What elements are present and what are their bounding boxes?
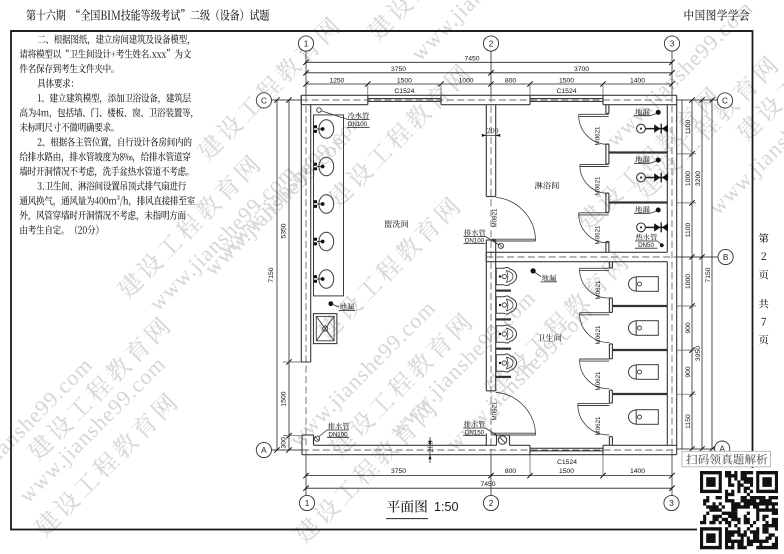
svg-text:M0621: M0621 [595, 126, 602, 145]
svg-text:3: 3 [670, 39, 675, 48]
svg-text:3950: 3950 [695, 346, 702, 361]
svg-text:1100: 1100 [685, 222, 692, 237]
svg-text:M0621: M0621 [595, 416, 602, 435]
svg-text:7150: 7150 [268, 267, 275, 282]
svg-text:800: 800 [505, 468, 517, 475]
svg-text:1150: 1150 [685, 414, 692, 429]
svg-text:1: 1 [304, 39, 309, 48]
svg-text:1: 1 [305, 499, 310, 508]
svg-text:1:50: 1:50 [434, 500, 459, 514]
svg-text:300: 300 [280, 437, 287, 449]
svg-text:7150: 7150 [705, 267, 712, 282]
svg-text:M0621: M0621 [595, 371, 602, 390]
svg-text:1400: 1400 [630, 77, 645, 84]
svg-text:1400: 1400 [630, 468, 645, 475]
svg-text:M0621: M0621 [595, 176, 602, 195]
svg-text:1500: 1500 [559, 77, 574, 84]
svg-text:M0921: M0921 [492, 208, 499, 227]
svg-text:M0621: M0621 [595, 280, 602, 299]
svg-text:M0921: M0921 [492, 401, 499, 420]
svg-text:M0621: M0621 [595, 225, 602, 244]
svg-text:2: 2 [489, 39, 494, 48]
svg-text:800: 800 [505, 77, 517, 84]
svg-text:1500: 1500 [397, 77, 412, 84]
svg-text:C: C [261, 96, 267, 105]
svg-text:900: 900 [685, 322, 692, 334]
svg-text:3: 3 [669, 499, 674, 508]
svg-text:2: 2 [489, 499, 494, 508]
svg-text:7450: 7450 [480, 481, 495, 488]
svg-text:5350: 5350 [280, 223, 287, 238]
svg-text:C1524: C1524 [556, 88, 576, 95]
svg-text:900: 900 [685, 366, 692, 378]
svg-text:C: C [722, 96, 728, 105]
svg-text:7450: 7450 [464, 56, 479, 63]
svg-text:1000: 1000 [458, 77, 473, 84]
svg-text:3200: 3200 [695, 171, 702, 186]
svg-text:1500: 1500 [559, 468, 574, 475]
svg-text:A: A [261, 446, 267, 455]
svg-text:3750: 3750 [391, 66, 406, 73]
svg-text:M0621: M0621 [595, 325, 602, 344]
svg-text:1000: 1000 [685, 274, 692, 289]
svg-text:3700: 3700 [574, 66, 589, 73]
svg-text:3750: 3750 [391, 468, 406, 475]
svg-text:C1524: C1524 [557, 459, 577, 466]
svg-text:1100: 1100 [685, 119, 692, 134]
svg-text:1500: 1500 [280, 391, 287, 406]
svg-text:B: B [723, 253, 729, 262]
svg-text:1000: 1000 [685, 171, 692, 186]
svg-text:C1524: C1524 [394, 88, 414, 95]
svg-text:1250: 1250 [329, 77, 344, 84]
